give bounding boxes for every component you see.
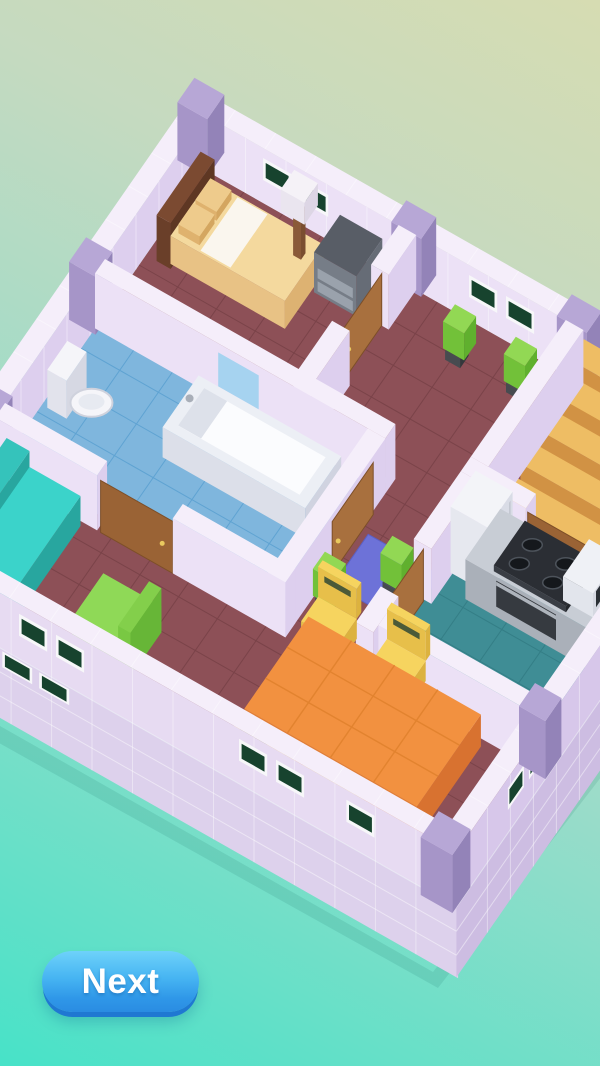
- door-handle: [160, 541, 165, 546]
- stove-burner: [509, 557, 529, 569]
- stove-burner: [543, 576, 563, 588]
- floorplan-scene: [0, 0, 600, 1066]
- next-button[interactable]: Next: [42, 951, 199, 1012]
- game-screen: Next: [0, 0, 600, 1066]
- door-handle: [336, 538, 341, 543]
- toilet-bowl-inner: [78, 394, 104, 410]
- bath-faucet: [186, 394, 194, 402]
- bed-headboard-front: [157, 215, 171, 269]
- stove-burner: [522, 539, 542, 551]
